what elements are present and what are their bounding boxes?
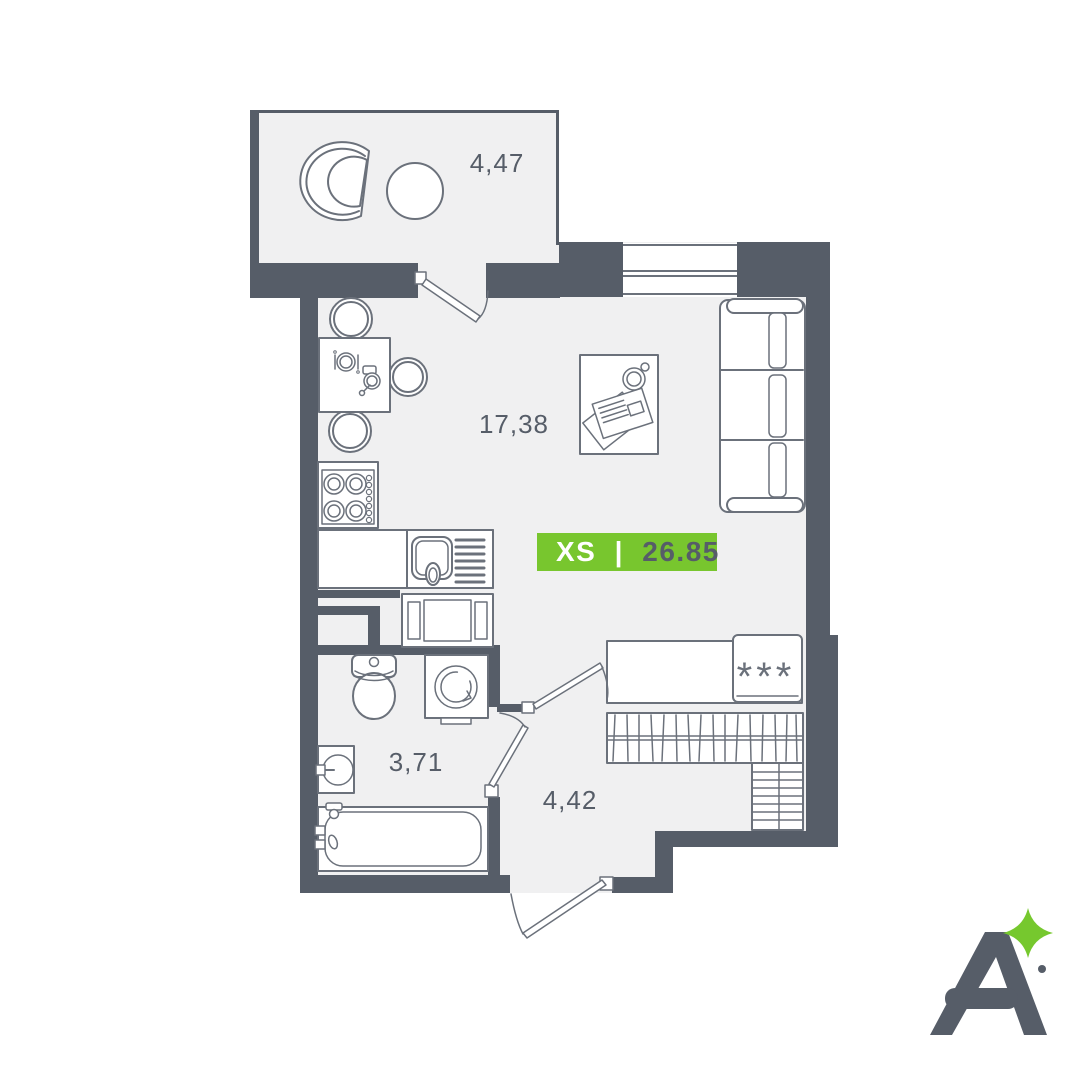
washbasin-icon: [316, 746, 354, 793]
wall: [318, 590, 400, 598]
wardrobe-icon: [607, 713, 803, 763]
wall: [300, 875, 510, 893]
window-icon: [623, 243, 737, 297]
round-table-icon: [387, 163, 443, 219]
floor-plan-page: *** 4,47 17,38 3,71 4,42 XS | 26.85: [0, 0, 1081, 1081]
shelf-icon: [752, 763, 803, 830]
wall: [556, 110, 559, 245]
snowflake-icon: ***: [737, 655, 796, 699]
wall: [612, 877, 673, 893]
wall: [486, 263, 560, 298]
badge-separator: |: [615, 536, 624, 567]
wall: [368, 615, 380, 647]
kitchen-sink-icon: [318, 530, 493, 588]
dining-table-icon: [319, 338, 390, 412]
apartment-type-badge: XS | 26.85: [537, 533, 720, 571]
badge-size-label: XS: [556, 536, 596, 567]
wall: [250, 110, 559, 113]
wall: [655, 831, 838, 847]
bathroom-area-label: 3,71: [389, 747, 444, 777]
toilet-icon: [352, 655, 396, 719]
wall: [806, 242, 830, 635]
hallway-area-label: 4,42: [543, 785, 598, 815]
wall: [806, 635, 838, 847]
wall: [488, 797, 500, 875]
chair-icon: [330, 298, 372, 340]
stove-icon: [318, 462, 378, 528]
washing-machine-icon: [425, 655, 488, 724]
developer-logo: [930, 908, 1053, 1035]
balcony-area-label: 4,47: [470, 148, 525, 178]
wall: [318, 606, 380, 615]
badge-area-value: 26.85: [642, 536, 720, 567]
chair-icon: [389, 358, 427, 396]
wall: [250, 263, 418, 298]
floor-plan: *** 4,47 17,38 3,71 4,42 XS | 26.85: [0, 0, 1081, 1081]
wall: [559, 242, 623, 297]
wall: [300, 292, 318, 875]
coffee-table-icon: [580, 355, 658, 454]
microwave-icon: [402, 594, 493, 647]
logo-crossbar: [945, 988, 1018, 1009]
wall: [488, 645, 500, 707]
sofa-icon: [720, 299, 805, 512]
living-area-label: 17,38: [479, 409, 549, 439]
logo-dot: [1038, 965, 1046, 973]
wall: [655, 831, 673, 879]
chair-icon: [329, 410, 371, 452]
bathtub-icon: [315, 803, 488, 871]
